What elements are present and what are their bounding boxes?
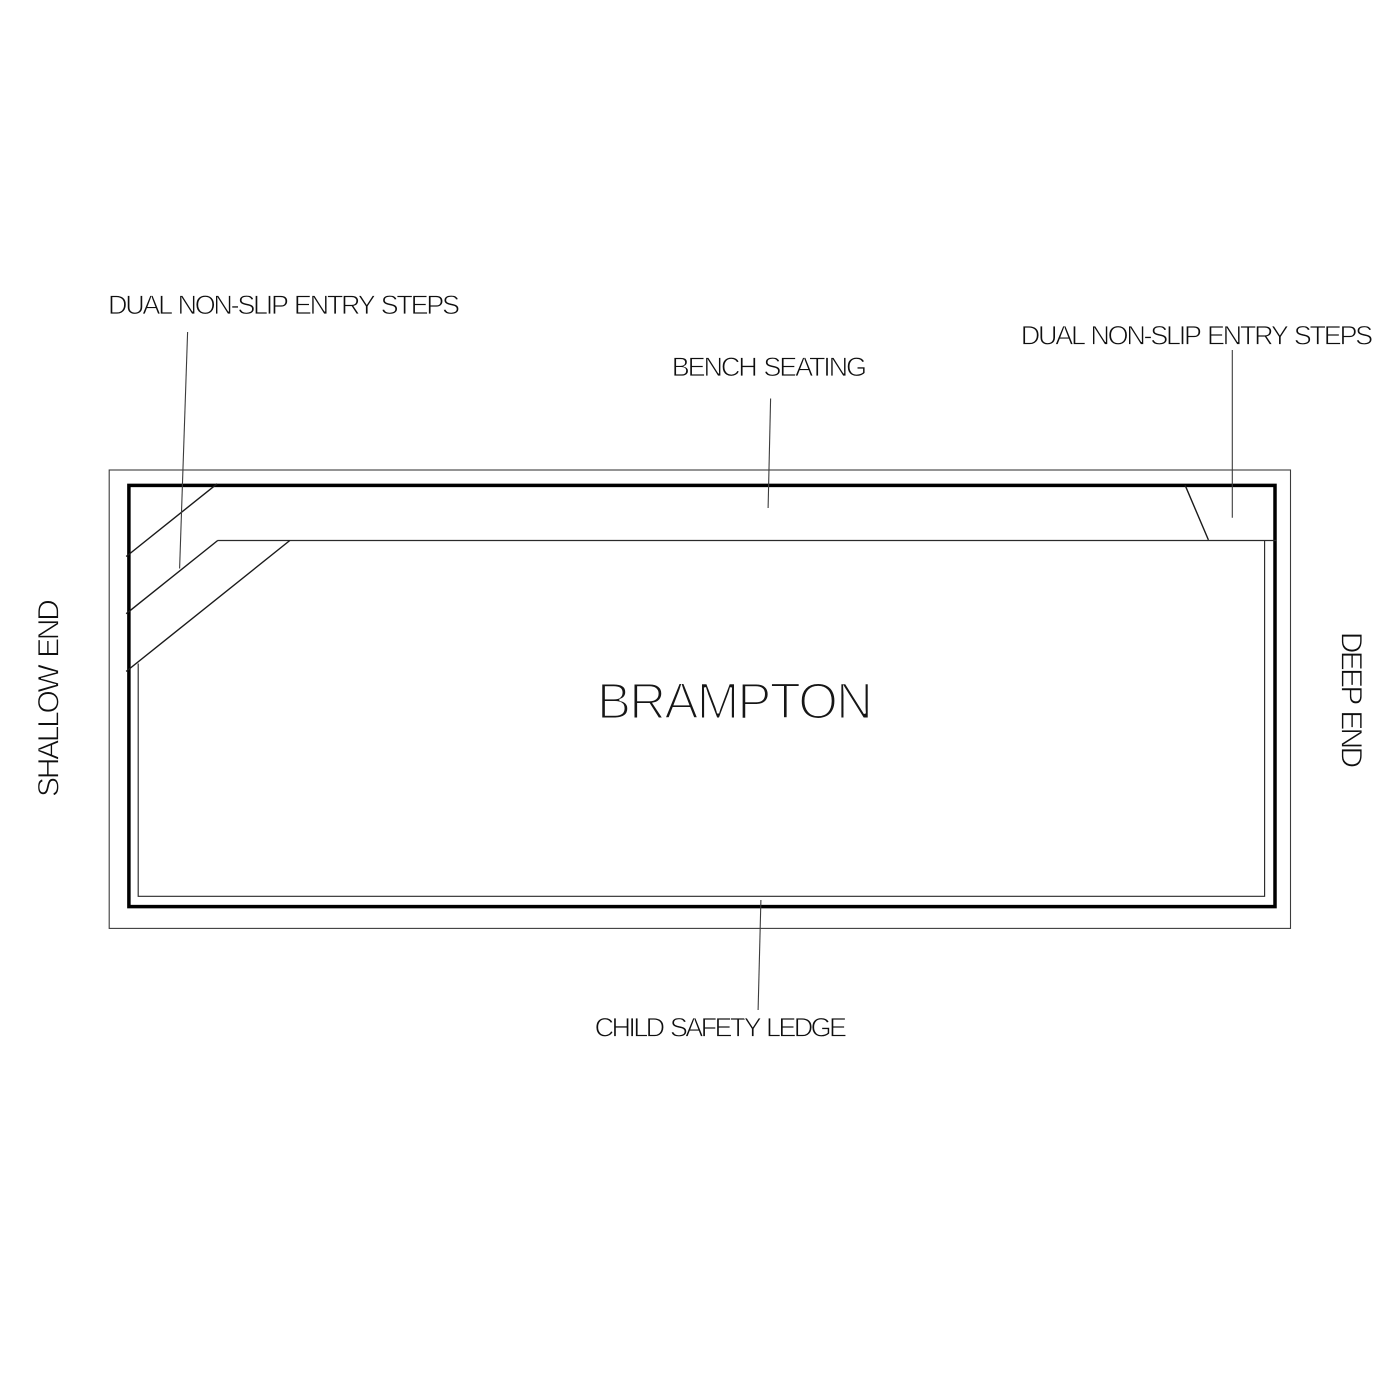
svg-text:DEEP END: DEEP END: [1334, 632, 1367, 768]
svg-text:DUAL NON-SLIP ENTRY STEPS: DUAL NON-SLIP ENTRY STEPS: [1021, 320, 1373, 350]
svg-text:DUAL NON-SLIP ENTRY STEPS: DUAL NON-SLIP ENTRY STEPS: [108, 290, 460, 320]
svg-text:SHALLOW END: SHALLOW END: [33, 599, 66, 797]
svg-text:CHILD SAFETY LEDGE: CHILD SAFETY LEDGE: [595, 1012, 847, 1042]
svg-text:BRAMPTON: BRAMPTON: [597, 673, 873, 730]
svg-text:BENCH SEATING: BENCH SEATING: [672, 352, 867, 382]
